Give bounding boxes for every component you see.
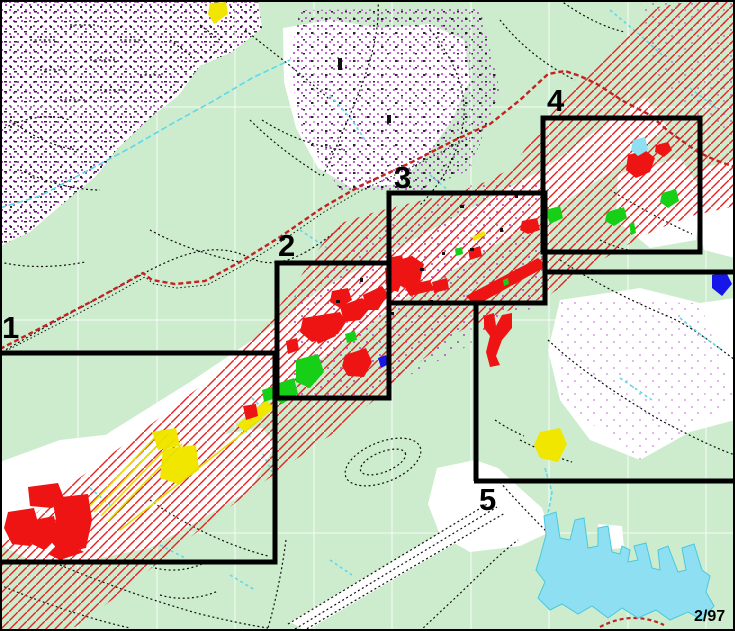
index-map: 1 2 3 4 5 2/97 <box>0 0 735 631</box>
sheet-label-3: 3 <box>394 162 411 193</box>
date-label: 2/97 <box>694 609 725 625</box>
sheet-label-5: 5 <box>479 484 496 515</box>
sheet-label-4: 4 <box>547 85 564 116</box>
sheet-label-2: 2 <box>278 230 295 261</box>
sheet-label-1: 1 <box>2 312 19 343</box>
map-canvas <box>0 0 735 631</box>
